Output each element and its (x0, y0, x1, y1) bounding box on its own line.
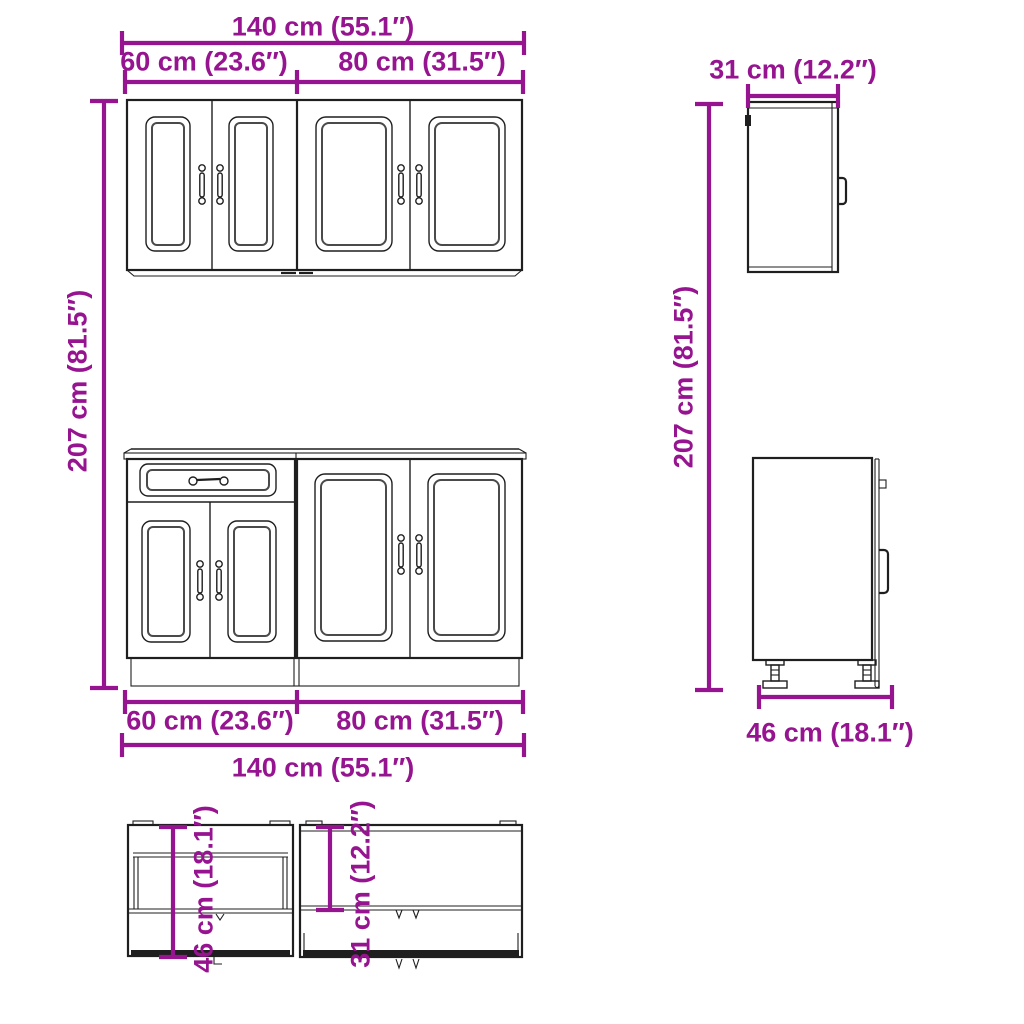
dimension-line-wall-depth (748, 84, 838, 108)
hinge-icon (745, 115, 751, 126)
dim-label-base-depth: 46 cm (18.1″) (746, 718, 914, 749)
door-handle-icon (197, 535, 422, 600)
dim-label-topview-base-depth: 46 cm (18.1″) (189, 805, 220, 973)
wall-cabinet-side-view (745, 102, 846, 272)
wall-cabinet-top-view (300, 821, 522, 968)
dimension-line-topview-base-depth (159, 827, 187, 957)
dim-label-height-left: 207 cm (81.5″) (63, 290, 94, 473)
dimension-line-topview-wall-depth (316, 827, 344, 910)
diagram-line-art (0, 0, 1024, 1024)
dim-label-total-width-top: 140 cm (55.1″) (232, 12, 415, 43)
base-cabinet-side-view (753, 458, 888, 688)
latch-icon (879, 480, 886, 488)
dim-label-right-width-top: 80 cm (31.5″) (338, 47, 506, 78)
side-handle-icon (879, 550, 888, 593)
base-cabinets-front-view (124, 449, 526, 686)
dim-label-left-width-bottom: 60 cm (23.6″) (126, 706, 294, 737)
cabinet-dimension-diagram: 140 cm (55.1″) 60 cm (23.6″) 80 cm (31.5… (0, 0, 1024, 1024)
wall-cabinets-front-view (127, 100, 522, 276)
dim-label-height-right: 207 cm (81.5″) (669, 286, 700, 469)
side-handle-icon (838, 178, 846, 204)
door-handle-icon (199, 165, 422, 204)
drawer-handle-icon (189, 477, 228, 485)
adjustable-foot-icon (763, 660, 787, 688)
dim-label-right-width-bottom: 80 cm (31.5″) (336, 706, 504, 737)
dim-label-wall-depth: 31 cm (12.2″) (709, 55, 877, 86)
dim-label-topview-wall-depth: 31 cm (12.2″) (346, 800, 377, 968)
dim-label-total-width-bottom: 140 cm (55.1″) (232, 753, 415, 784)
dimension-line-height-left (90, 101, 118, 688)
dim-label-left-width-top: 60 cm (23.6″) (120, 47, 288, 78)
